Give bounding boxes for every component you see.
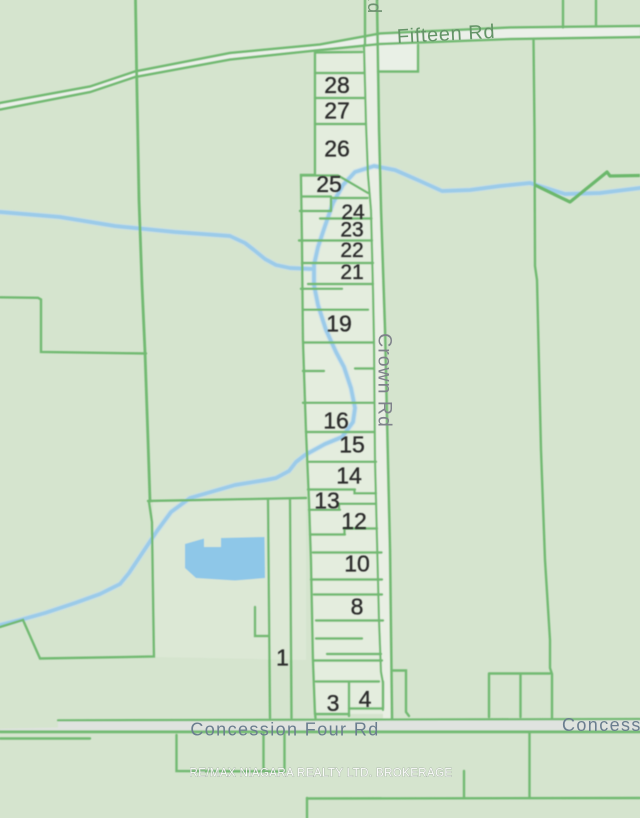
svg-text:Concession Four Rd: Concession Four Rd — [190, 720, 379, 740]
svg-text:4: 4 — [359, 686, 372, 712]
svg-text:1: 1 — [276, 645, 289, 671]
svg-text:Rd: Rd — [363, 0, 384, 14]
svg-text:16: 16 — [323, 408, 349, 434]
svg-text:8: 8 — [351, 594, 364, 620]
svg-text:19: 19 — [326, 311, 352, 337]
svg-text:26: 26 — [324, 136, 350, 162]
svg-text:21: 21 — [340, 261, 363, 284]
svg-text:Crown Rd: Crown Rd — [374, 333, 396, 428]
svg-text:25: 25 — [316, 171, 342, 197]
svg-text:28: 28 — [324, 72, 350, 98]
svg-text:14: 14 — [336, 463, 362, 489]
svg-text:10: 10 — [344, 551, 370, 577]
svg-text:15: 15 — [339, 432, 365, 458]
svg-text:22: 22 — [340, 239, 363, 262]
svg-text:13: 13 — [314, 488, 340, 514]
svg-text:27: 27 — [324, 98, 350, 124]
svg-text:Concession: Concession — [562, 715, 640, 735]
svg-text:RE/MAX NIAGARA REALTY LTD. BRO: RE/MAX NIAGARA REALTY LTD. BROKERAGE — [190, 768, 453, 780]
svg-text:3: 3 — [327, 690, 340, 716]
svg-text:12: 12 — [341, 508, 367, 534]
